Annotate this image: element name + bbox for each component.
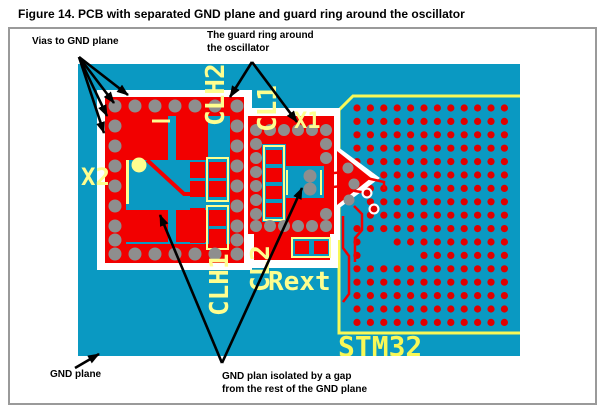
figure-page: Figure 14. PCB with separated GND plane … xyxy=(0,0,606,412)
silk-cl1: CL1 xyxy=(253,85,283,132)
guard-ring-label-line2: the oscillator xyxy=(207,42,314,55)
silk-x2: X2 xyxy=(81,163,110,191)
silk-clh1: CLH1 xyxy=(205,253,235,316)
isolated-gnd-label-line2: from the rest of the GND plane xyxy=(222,383,367,396)
gnd-plane-label: GND plane xyxy=(50,368,101,381)
silk-x1: X1 xyxy=(294,109,321,134)
arrow-gnd-plane xyxy=(75,354,99,368)
guard-ring-label-line1: The guard ring around xyxy=(207,29,314,42)
pcb-svg: X2 X1 CLH2 CL1 CLH1 CL2 Rext STM32 xyxy=(78,64,520,356)
silk-rext: Rext xyxy=(268,267,331,297)
isolated-gnd-label-line1: GND plan isolated by a gap xyxy=(222,370,367,383)
silk-stm32: STM32 xyxy=(338,330,422,356)
x2-pin1-dot xyxy=(132,158,147,173)
guard-ring-label: The guard ring around the oscillator xyxy=(207,29,314,55)
figure-box: X2 X1 CLH2 CL1 CLH1 CL2 Rext STM32 xyxy=(8,27,597,405)
vias-label: Vias to GND plane xyxy=(32,35,119,48)
figure-title: Figure 14. PCB with separated GND plane … xyxy=(18,7,465,21)
silk-clh2: CLH2 xyxy=(201,64,231,126)
isolated-gnd-label: GND plan isolated by a gap from the rest… xyxy=(222,370,367,396)
